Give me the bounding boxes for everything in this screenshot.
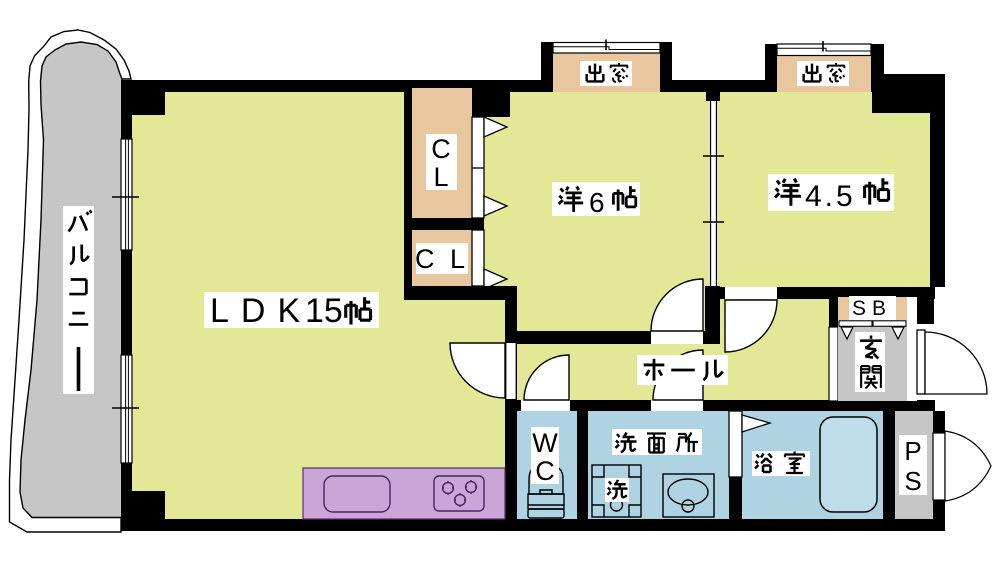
svg-text:4.5: 4.5 xyxy=(805,180,856,213)
svg-text:LDK: LDK xyxy=(210,292,312,330)
svg-text:P: P xyxy=(904,436,921,466)
svg-text:C: C xyxy=(431,134,451,164)
svg-text:S: S xyxy=(904,466,921,496)
svg-text:6: 6 xyxy=(589,187,605,218)
svg-text:C: C xyxy=(535,456,555,486)
svg-text:C L: C L xyxy=(415,244,469,274)
svg-text:15: 15 xyxy=(305,292,343,330)
svg-text:W: W xyxy=(532,428,558,458)
svg-text:L: L xyxy=(433,162,448,192)
svg-text:SB: SB xyxy=(852,297,892,320)
